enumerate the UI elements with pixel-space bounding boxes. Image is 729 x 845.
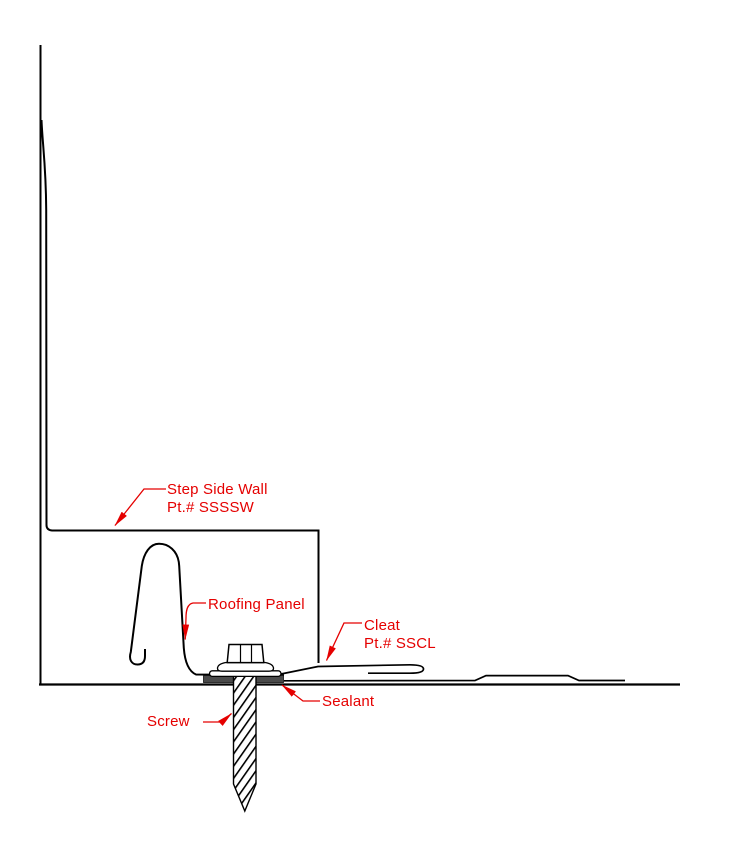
- label-step-side-wall: Step Side Wall Pt.# SSSSW: [167, 481, 268, 517]
- label-step-side-wall-line2: Pt.# SSSSW: [167, 499, 268, 517]
- step-side-wall-leader: [115, 489, 166, 526]
- label-roofing-panel-line1: Roofing Panel: [208, 596, 305, 614]
- label-roofing-panel: Roofing Panel: [208, 596, 305, 614]
- label-sealant-line1: Sealant: [322, 693, 374, 711]
- cleat-profile: [281, 665, 424, 674]
- label-sealant: Sealant: [322, 693, 374, 711]
- cleat-base-flange: [284, 676, 625, 681]
- screw-leader: [203, 714, 232, 723]
- label-step-side-wall-line1: Step Side Wall: [167, 481, 268, 499]
- roofing-panel-leader: [185, 603, 206, 640]
- screw-shaft: [234, 674, 257, 811]
- label-cleat: Cleat Pt.# SSCL: [364, 617, 436, 653]
- label-screw: Screw: [147, 713, 190, 731]
- screw-head-flange: [218, 663, 274, 672]
- label-cleat-line1: Cleat: [364, 617, 436, 635]
- detail-drawing-svg: [0, 0, 729, 845]
- sealant-leader: [282, 685, 320, 701]
- cleat-leader: [327, 623, 363, 661]
- label-cleat-line2: Pt.# SSCL: [364, 635, 436, 653]
- screw-hex-head: [227, 645, 264, 663]
- label-screw-line1: Screw: [147, 713, 190, 731]
- diagram-canvas: Step Side Wall Pt.# SSSSW Roofing Panel …: [0, 0, 729, 845]
